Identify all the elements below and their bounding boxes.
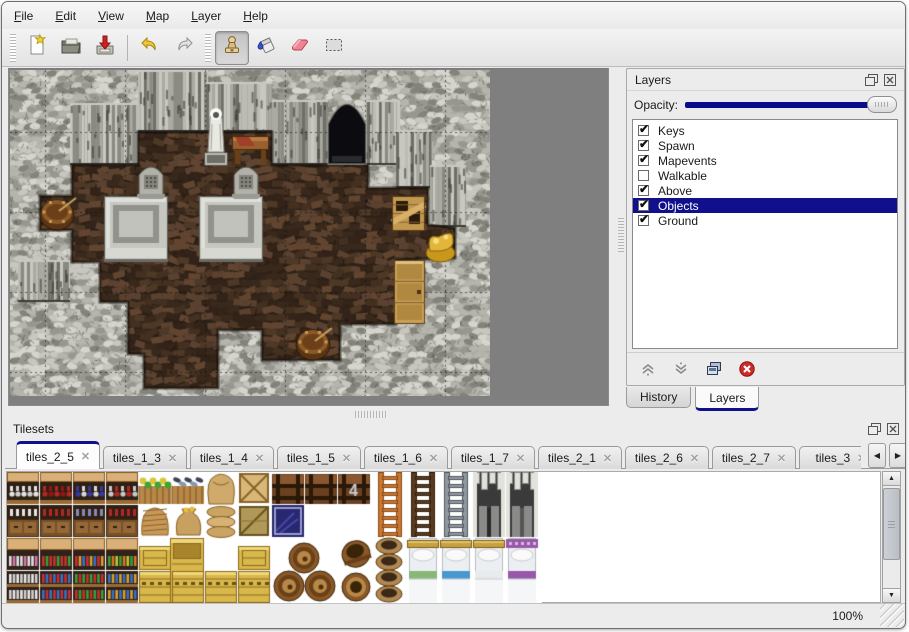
eraser-tool-button[interactable] xyxy=(283,31,317,65)
tileset-tab-tiles_1_6[interactable]: tiles_1_6✕ xyxy=(364,446,448,469)
layer-visibility-checkbox[interactable] xyxy=(638,155,649,166)
scrollbar-thumb[interactable] xyxy=(883,488,900,560)
menu-edit[interactable]: Edit xyxy=(55,9,76,23)
layer-name: Mapevents xyxy=(658,154,717,168)
close-tab-icon[interactable]: ✕ xyxy=(777,452,786,465)
map-viewport[interactable] xyxy=(8,68,609,406)
opacity-label: Opacity: xyxy=(634,98,678,112)
layer-row-spawn[interactable]: Spawn xyxy=(633,138,897,153)
open-folder-icon xyxy=(59,33,83,62)
layers-panel-title: Layers xyxy=(635,73,671,87)
fill-tool-icon xyxy=(254,33,278,62)
toolbar-drag-handle[interactable] xyxy=(10,34,16,62)
tileset-view[interactable] xyxy=(6,471,881,603)
move-layer-up-button[interactable] xyxy=(638,359,658,379)
scroll-down-button[interactable]: ▼ xyxy=(882,588,901,603)
close-tab-icon[interactable]: ✕ xyxy=(516,452,525,465)
open-map-button[interactable] xyxy=(54,31,88,65)
app-window: FileEditViewMapLayerHelp xyxy=(1,1,906,629)
close-tab-icon[interactable]: ✕ xyxy=(429,452,438,465)
layer-visibility-checkbox[interactable] xyxy=(638,200,649,211)
close-tab-icon[interactable]: ✕ xyxy=(168,452,177,465)
eraser-tool-icon xyxy=(288,33,312,62)
menu-layer[interactable]: Layer xyxy=(191,9,221,23)
dock-tabs: HistoryLayers xyxy=(626,387,759,412)
tilesets-panel: Tilesets tiles_2_5✕tiles_1_3✕tiles_1_4✕t… xyxy=(5,418,906,606)
opacity-slider-track xyxy=(685,102,895,108)
duplicate-layer-button[interactable] xyxy=(704,359,724,379)
layers-panel-titlebar: Layers xyxy=(627,69,904,91)
layers-panel: Layers Opacity: KeysSpawnMapeventsWalkab… xyxy=(626,68,905,386)
stamp-tool-icon xyxy=(220,33,244,62)
delete-layer-button[interactable] xyxy=(737,359,757,379)
tileset-tab-label: tiles_2_6 xyxy=(635,451,683,465)
tileset-scrollbar[interactable]: ▲ ▼ xyxy=(882,471,901,603)
tileset-tab-label: tiles_1_5 xyxy=(287,451,335,465)
layer-visibility-checkbox[interactable] xyxy=(638,185,649,196)
tileset-tab-tiles_1_5[interactable]: tiles_1_5✕ xyxy=(277,446,361,469)
status-bar: 100% xyxy=(2,603,905,628)
float-panel-icon[interactable] xyxy=(865,74,878,86)
layer-visibility-checkbox[interactable] xyxy=(638,140,649,151)
close-tab-icon[interactable]: ✕ xyxy=(81,450,90,463)
scroll-tabs-right-button[interactable]: ▶ xyxy=(889,443,906,468)
tileset-tab-label: tiles_1_6 xyxy=(374,451,422,465)
tileset-tab-tiles_1_7[interactable]: tiles_1_7✕ xyxy=(451,446,535,469)
layer-name: Spawn xyxy=(658,139,695,153)
close-tab-icon[interactable]: ✕ xyxy=(690,452,699,465)
tileset-tab-label: tiles_1_3 xyxy=(113,451,161,465)
zoom-level: 100% xyxy=(832,609,863,623)
layer-name: Objects xyxy=(658,199,699,213)
layer-list: KeysSpawnMapeventsWalkableAboveObjectsGr… xyxy=(632,119,898,349)
tileset-tab-tiles_2_1[interactable]: tiles_2_1✕ xyxy=(538,446,622,469)
vertical-splitter-handle[interactable] xyxy=(618,218,624,252)
menu-help[interactable]: Help xyxy=(243,9,268,23)
dock-tab-layers[interactable]: Layers xyxy=(695,387,759,411)
stamp-tool-button[interactable] xyxy=(215,31,249,65)
tileset-tab-tiles_2_6[interactable]: tiles_2_6✕ xyxy=(625,446,709,469)
toolbar-drag-handle[interactable] xyxy=(205,34,211,62)
undo-button[interactable] xyxy=(133,31,167,65)
layer-name: Above xyxy=(658,184,692,198)
layer-name: Ground xyxy=(658,214,698,228)
undo-icon xyxy=(138,33,162,62)
dock-tab-history[interactable]: History xyxy=(626,387,691,408)
save-icon xyxy=(93,33,117,62)
tileset-tab-tiles_1_4[interactable]: tiles_1_4✕ xyxy=(190,446,274,469)
map-canvas[interactable] xyxy=(10,70,490,396)
tileset-tab-tiles_1_3[interactable]: tiles_1_3✕ xyxy=(103,446,187,469)
tileset-tab-label: tiles_2_1 xyxy=(548,451,596,465)
tileset-tab-label: tiles_1_7 xyxy=(461,451,509,465)
tileset-tab-label: tiles_2_5 xyxy=(26,450,74,464)
close-tab-icon[interactable]: ✕ xyxy=(255,452,264,465)
tileset-tab-tiles_3[interactable]: tiles_3✕ xyxy=(799,446,861,469)
tileset-tab-tiles_2_5[interactable]: tiles_2_5✕ xyxy=(16,441,100,469)
layer-row-above[interactable]: Above xyxy=(633,183,897,198)
layer-row-mapevents[interactable]: Mapevents xyxy=(633,153,897,168)
scroll-tabs-left-button[interactable]: ◀ xyxy=(868,443,886,468)
close-tab-icon[interactable]: ✕ xyxy=(857,452,861,465)
layer-visibility-checkbox[interactable] xyxy=(638,170,649,181)
float-panel-icon[interactable] xyxy=(868,423,881,435)
layer-row-objects[interactable]: Objects xyxy=(633,198,897,213)
scroll-up-button[interactable]: ▲ xyxy=(882,471,901,486)
tilesets-panel-titlebar: Tilesets xyxy=(5,418,906,440)
select-tool-button[interactable] xyxy=(317,31,351,65)
horizontal-splitter-handle[interactable] xyxy=(355,411,388,418)
window-resize-grip[interactable] xyxy=(880,604,904,627)
tileset-canvas[interactable] xyxy=(7,472,542,603)
move-layer-down-button[interactable] xyxy=(671,359,691,379)
redo-button[interactable] xyxy=(167,31,201,65)
menu-map[interactable]: Map xyxy=(146,9,169,23)
layer-visibility-checkbox[interactable] xyxy=(638,215,649,226)
save-map-button[interactable] xyxy=(88,31,122,65)
layer-name: Keys xyxy=(658,124,685,138)
layer-row-ground[interactable]: Ground xyxy=(633,213,897,228)
layer-visibility-checkbox[interactable] xyxy=(638,125,649,136)
menu-bar: FileEditViewMapLayerHelp xyxy=(2,2,905,29)
layer-row-walkable[interactable]: Walkable xyxy=(633,168,897,183)
opacity-slider-handle[interactable] xyxy=(867,96,897,113)
select-tool-icon xyxy=(322,33,346,62)
tileset-tab-label: tiles_2_7 xyxy=(722,451,770,465)
fill-tool-button[interactable] xyxy=(249,31,283,65)
menu-view[interactable]: View xyxy=(98,9,124,23)
opacity-slider[interactable] xyxy=(685,96,897,113)
tileset-tab-tiles_2_7[interactable]: tiles_2_7✕ xyxy=(712,446,796,469)
menu-file[interactable]: File xyxy=(14,9,33,23)
close-tab-icon[interactable]: ✕ xyxy=(342,452,351,465)
redo-icon xyxy=(172,33,196,62)
tileset-tab-label: tiles_3 xyxy=(816,451,851,465)
new-file-icon xyxy=(25,33,49,62)
close-panel-icon[interactable] xyxy=(886,423,899,435)
layer-row-keys[interactable]: Keys xyxy=(633,123,897,138)
new-map-button[interactable] xyxy=(20,31,54,65)
tileset-tabs: tiles_2_5✕tiles_1_3✕tiles_1_4✕tiles_1_5✕… xyxy=(16,441,861,469)
layer-name: Walkable xyxy=(658,169,707,183)
tileset-tab-label: tiles_1_4 xyxy=(200,451,248,465)
layer-actions xyxy=(627,352,904,385)
toolbar xyxy=(2,29,905,67)
tilesets-panel-title: Tilesets xyxy=(13,422,54,436)
toolbar-separator xyxy=(127,35,128,61)
close-tab-icon[interactable]: ✕ xyxy=(603,452,612,465)
close-panel-icon[interactable] xyxy=(883,74,896,86)
